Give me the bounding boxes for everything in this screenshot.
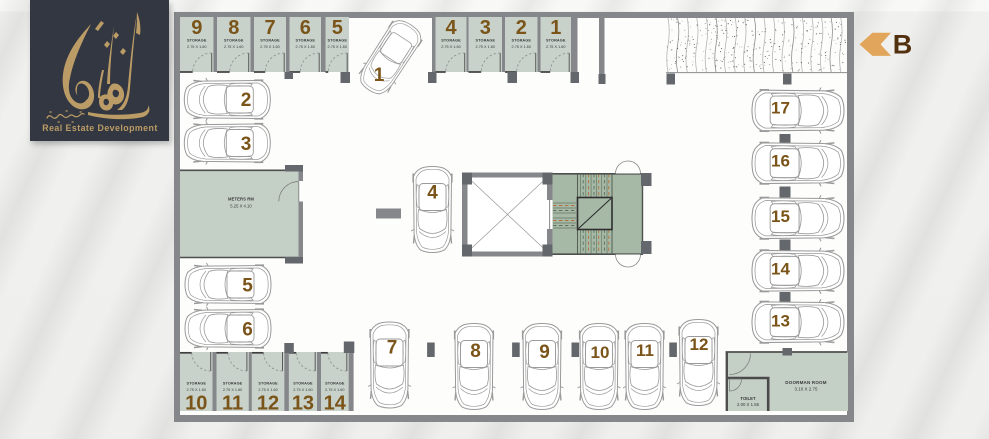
svg-text:STORAGE: STORAGE — [476, 39, 496, 43]
svg-text:5: 5 — [332, 17, 343, 39]
svg-text:DOORMAN ROOM: DOORMAN ROOM — [785, 380, 826, 385]
svg-text:B: B — [893, 30, 913, 60]
svg-text:2.75 X 1.60: 2.75 X 1.60 — [546, 45, 565, 49]
svg-text:2.75 X 1.60: 2.75 X 1.60 — [476, 45, 495, 49]
svg-text:8: 8 — [470, 341, 481, 362]
svg-text:2: 2 — [516, 17, 527, 39]
svg-text:10: 10 — [591, 343, 610, 362]
svg-text:2.00 X 1.55: 2.00 X 1.55 — [737, 402, 760, 407]
svg-text:TOILET: TOILET — [740, 396, 756, 401]
svg-text:1: 1 — [374, 65, 385, 86]
svg-text:STORAGE: STORAGE — [441, 39, 461, 43]
svg-text:17: 17 — [771, 99, 790, 118]
svg-text:1: 1 — [550, 17, 561, 39]
svg-text:Real Estate Development: Real Estate Development — [42, 123, 157, 133]
svg-text:4: 4 — [427, 183, 438, 204]
svg-text:3: 3 — [241, 134, 252, 155]
svg-text:6: 6 — [300, 17, 311, 39]
svg-text:15: 15 — [771, 207, 790, 226]
svg-text:2.75 X 1.60: 2.75 X 1.60 — [512, 45, 531, 49]
svg-text:7: 7 — [387, 338, 398, 359]
svg-text:11: 11 — [636, 341, 654, 360]
svg-text:STORAGE: STORAGE — [512, 39, 532, 43]
svg-text:2.75 X 1.60: 2.75 X 1.60 — [260, 45, 279, 49]
svg-text:STORAGE: STORAGE — [223, 382, 243, 386]
svg-text:4: 4 — [445, 17, 457, 39]
svg-text:METERS RM: METERS RM — [228, 197, 254, 202]
svg-text:12: 12 — [690, 335, 709, 354]
svg-text:STORAGE: STORAGE — [546, 39, 566, 43]
svg-text:13: 13 — [292, 393, 314, 415]
svg-text:2.75 X 1.60: 2.75 X 1.60 — [441, 45, 460, 49]
svg-text:STORAGE: STORAGE — [260, 39, 280, 43]
svg-text:STORAGE: STORAGE — [258, 382, 278, 386]
svg-text:11: 11 — [222, 393, 243, 415]
svg-text:2.75 X 1.60: 2.75 X 1.60 — [328, 45, 347, 49]
svg-text:STORAGE: STORAGE — [296, 39, 316, 43]
svg-text:3: 3 — [480, 17, 491, 39]
svg-text:9: 9 — [539, 342, 550, 363]
svg-text:STORAGE: STORAGE — [187, 39, 207, 43]
svg-text:STORAGE: STORAGE — [325, 382, 345, 386]
svg-text:STORAGE: STORAGE — [187, 382, 207, 386]
svg-text:2.75 X 1.60: 2.75 X 1.60 — [223, 388, 242, 392]
svg-text:14: 14 — [324, 393, 347, 415]
svg-text:12: 12 — [257, 393, 279, 415]
svg-text:5.25 X 4.10: 5.25 X 4.10 — [230, 204, 252, 209]
svg-text:10: 10 — [185, 393, 207, 415]
svg-text:STORAGE: STORAGE — [293, 382, 313, 386]
svg-text:2.75 X 1.60: 2.75 X 1.60 — [325, 388, 344, 392]
svg-text:2: 2 — [241, 90, 252, 111]
svg-text:3.10 X 2.75: 3.10 X 2.75 — [794, 387, 818, 392]
svg-text:5: 5 — [242, 276, 253, 297]
svg-text:6: 6 — [242, 320, 253, 341]
svg-text:13: 13 — [771, 312, 790, 331]
svg-text:2.75 X 1.60: 2.75 X 1.60 — [224, 45, 243, 49]
svg-text:2.75 X 1.60: 2.75 X 1.60 — [187, 388, 206, 392]
svg-text:2.75 X 1.60: 2.75 X 1.60 — [187, 45, 206, 49]
svg-text:9: 9 — [191, 17, 202, 39]
svg-text:STORAGE: STORAGE — [224, 39, 244, 43]
svg-text:2.75 X 1.60: 2.75 X 1.60 — [258, 388, 277, 392]
svg-text:2.75 X 1.60: 2.75 X 1.60 — [293, 388, 312, 392]
svg-text:2.75 X 1.60: 2.75 X 1.60 — [296, 45, 315, 49]
svg-text:STORAGE: STORAGE — [328, 39, 348, 43]
svg-text:14: 14 — [771, 260, 790, 279]
svg-text:8: 8 — [228, 17, 239, 39]
svg-text:16: 16 — [771, 152, 790, 171]
svg-text:7: 7 — [264, 17, 275, 39]
